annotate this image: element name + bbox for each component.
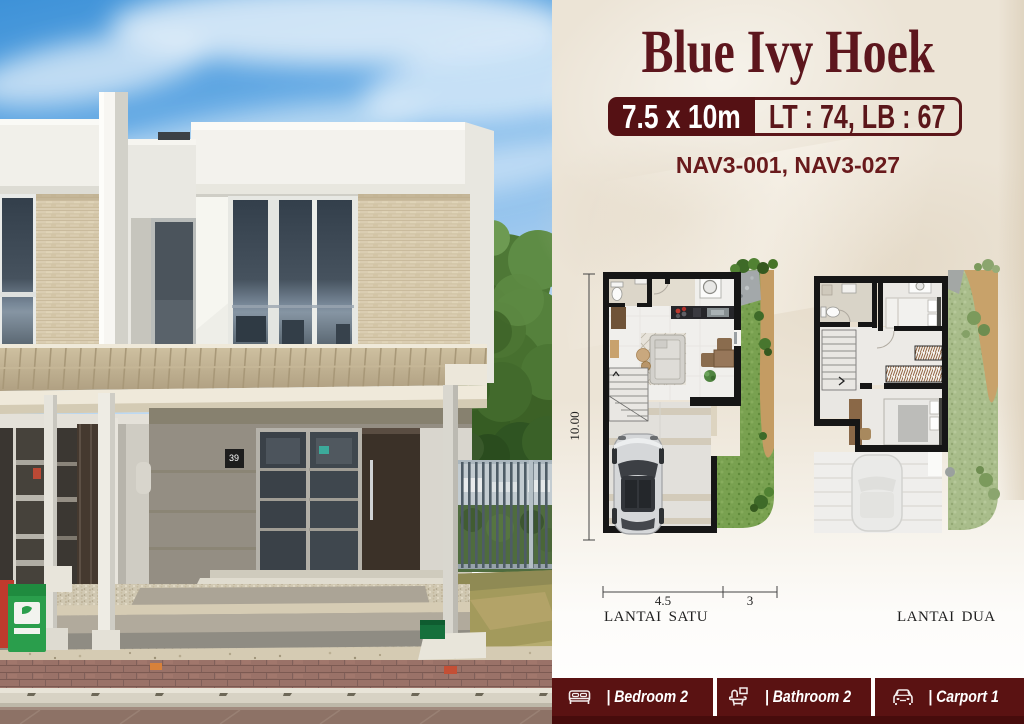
svg-text:3: 3 xyxy=(747,593,754,607)
svg-text:4.5: 4.5 xyxy=(655,593,671,607)
svg-text:10.00: 10.00 xyxy=(567,411,582,440)
svg-text:39: 39 xyxy=(229,453,239,463)
